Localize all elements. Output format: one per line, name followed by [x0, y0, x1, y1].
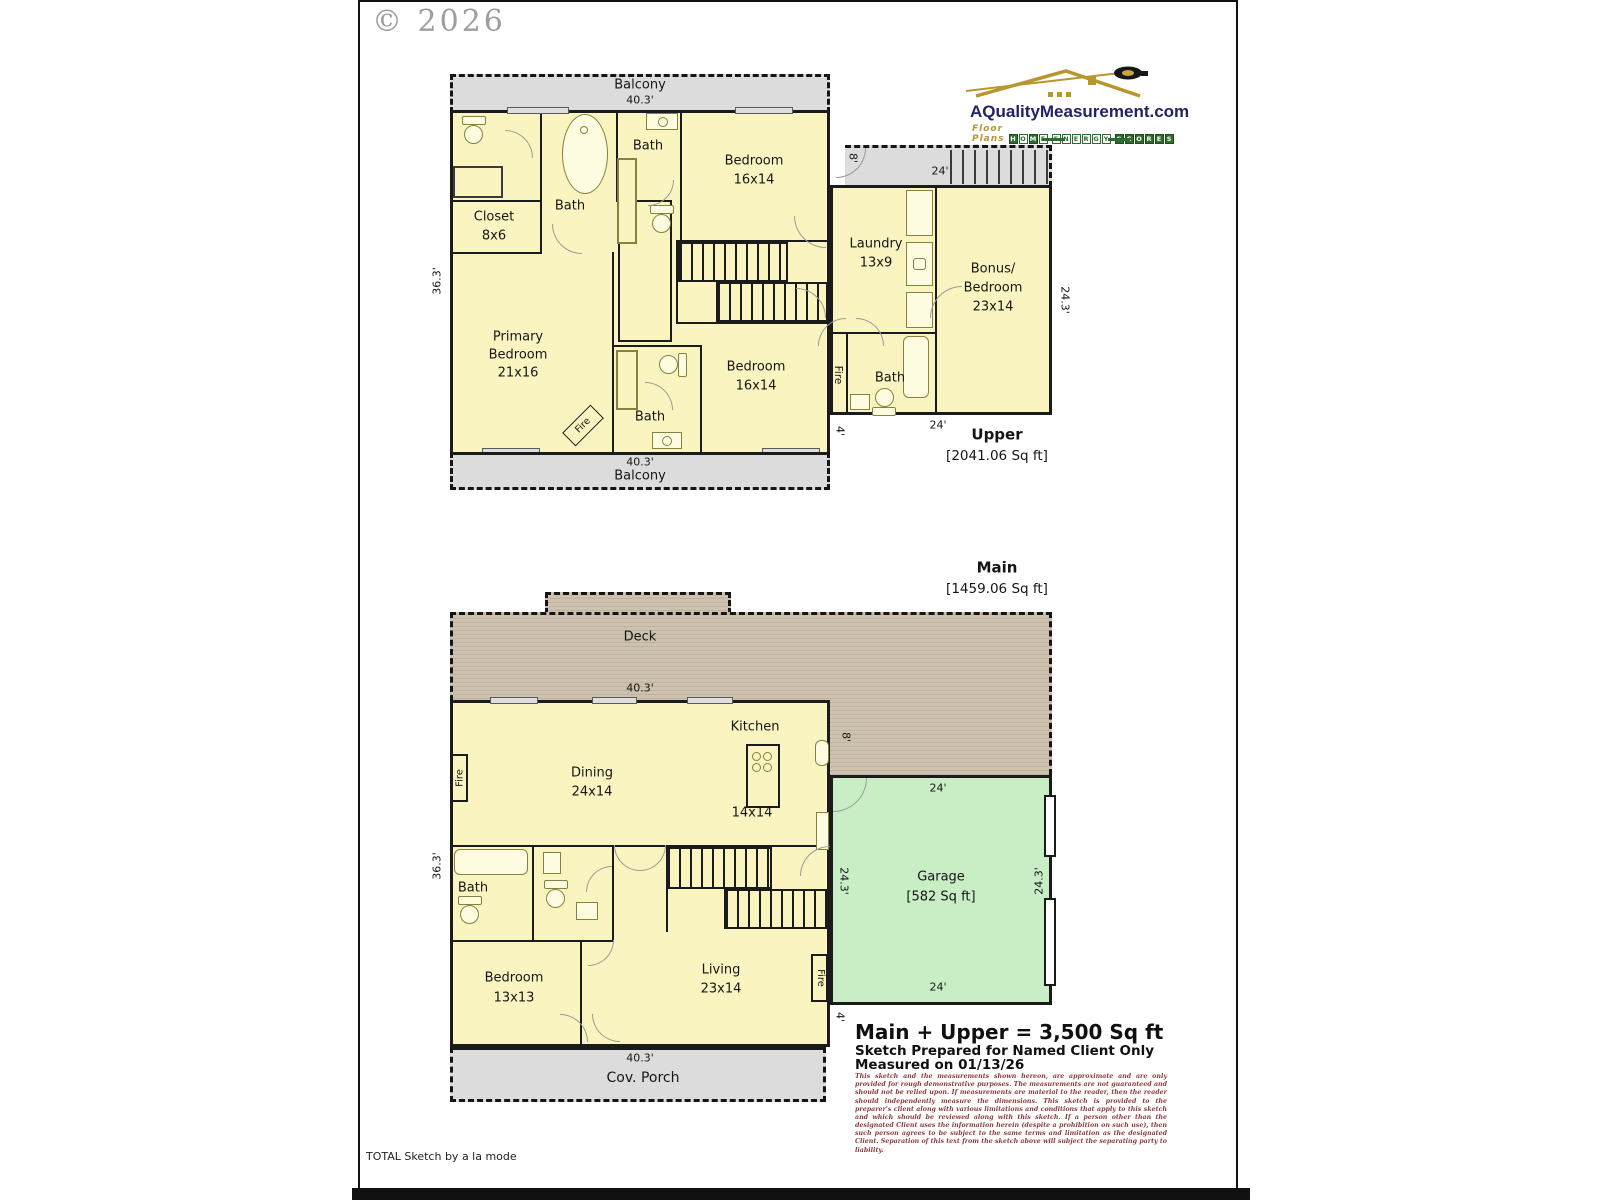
balcony-bottom-label: Balcony [614, 470, 666, 485]
wall [612, 252, 614, 452]
stove-icon [752, 752, 772, 772]
room-label-bedroom-size: 16x14 [734, 174, 775, 189]
fireplace-label: Fire [454, 769, 466, 787]
room-label-closet-size: 8x6 [482, 230, 506, 245]
copyright-watermark: © 2026 [372, 4, 506, 39]
disclaimer-text: This sketch and the measurements shown h… [855, 1073, 1167, 1155]
room-label-bedroom: Bedroom [727, 361, 786, 376]
room-label-laundry-size: 13x9 [860, 257, 893, 272]
main-area: [1459.06 Sq ft] [946, 582, 1048, 598]
wall [450, 200, 542, 202]
window-marker [592, 697, 637, 704]
strip-dim: 24' [931, 166, 948, 179]
room-label-bath: Bath [633, 140, 663, 155]
room-label-bath: Bath [555, 200, 585, 215]
main-title: Main [977, 559, 1018, 576]
kitchen-sink-icon [815, 740, 829, 766]
total-sqft: Main + Upper = 3,500 Sq ft [855, 1020, 1163, 1044]
room-label-bonus-size: 23x14 [973, 301, 1014, 316]
sketch-credit: TOTAL Sketch by a la mode [366, 1150, 517, 1163]
fireplace-label: Fire [832, 366, 844, 385]
room-label-bedroom: Bedroom [485, 972, 544, 987]
upper-title: Upper [971, 426, 1022, 443]
page-border-top [358, 0, 1238, 2]
stairs-main-flight [666, 847, 772, 889]
sink-icon [658, 117, 668, 127]
room-label-dining-size: 24x14 [572, 786, 613, 801]
dim-jog: 4' [833, 426, 846, 436]
window-marker [687, 697, 733, 704]
sink-icon [543, 852, 561, 874]
dim-garage: 24' [929, 982, 946, 995]
toilet-icon [462, 116, 486, 146]
dim-garage: 24' [929, 783, 946, 796]
sink-icon [850, 394, 870, 410]
fireplace-label: Fire [814, 969, 826, 987]
room-label-closet: Closet [474, 211, 515, 226]
room-label-dining: Dining [571, 767, 613, 782]
room-label-kitchen: Kitchen [731, 721, 780, 736]
logo-site-text: AQualityMeasurement.com [970, 102, 1189, 122]
company-logo: AQualityMeasurement.com Floor Plans & HO… [962, 64, 1162, 142]
wall [700, 345, 702, 452]
window-marker [490, 697, 538, 704]
stairs-main-flight [724, 889, 828, 929]
laundry-cabinet-icon [906, 190, 933, 236]
room-label-garage: Garage [917, 871, 965, 886]
porch-dim: 40.3' [626, 1053, 654, 1066]
stairs-upper-flight [678, 242, 788, 282]
shower-icon [453, 166, 503, 198]
wall [540, 110, 542, 252]
window-marker [507, 107, 569, 114]
badge-underline [1042, 138, 1064, 141]
tub-icon [454, 849, 528, 875]
room-label-laundry: Laundry [850, 238, 903, 253]
dim-height: 36.3' [432, 267, 445, 295]
room-label-primary: Bedroom [489, 349, 548, 364]
toilet-icon [544, 880, 568, 910]
dim-notch: 8' [839, 732, 852, 742]
wall [680, 110, 682, 242]
deck-label: Deck [624, 631, 657, 646]
measured-on: Measured on 01/13/26 [855, 1057, 1024, 1073]
shower-icon [617, 158, 637, 244]
room-label-garage-area: [582 Sq ft] [906, 891, 975, 906]
wall [532, 845, 534, 940]
room-label-bedroom: Bedroom [725, 155, 784, 170]
toilet-icon [650, 205, 674, 235]
roof-tape-measure-icon [962, 64, 1162, 104]
page-border-left [358, 0, 360, 1192]
deck-dim: 40.3' [626, 683, 654, 696]
laundry-cabinet-icon [906, 292, 933, 328]
toilet-icon [458, 896, 482, 926]
page-border-right [1236, 0, 1238, 1192]
toilet-icon [872, 386, 896, 416]
dim-garage: 24.3' [1034, 867, 1047, 895]
page-bottom-bar [352, 1188, 1250, 1200]
wall [846, 332, 848, 415]
dim-height: 24.3' [1058, 286, 1071, 314]
room-label-bath: Bath [875, 372, 905, 387]
balcony-top-dim: 40.3' [626, 95, 654, 108]
wall [676, 322, 830, 324]
tub-icon [903, 336, 929, 398]
sink-icon [662, 436, 672, 446]
garage-door-marker [1044, 795, 1056, 857]
dim-jog: 4' [833, 1012, 846, 1022]
upper-area: [2041.06 Sq ft] [946, 449, 1048, 465]
room-label-bonus: Bonus/ [971, 263, 1016, 278]
garage-door-marker [1044, 898, 1056, 986]
badge-underline [1108, 138, 1130, 141]
room-label-bedroom-size: 13x13 [494, 992, 535, 1007]
porch-label: Cov. Porch [607, 1070, 680, 1086]
floorplan-sheet: © 2026 AQualityMeasurement.com Floor Pla… [0, 0, 1600, 1200]
shower-icon [616, 350, 638, 410]
sink-icon [913, 258, 926, 270]
dim-garage: 24.3' [837, 867, 850, 895]
open-stairs-hatch [950, 150, 1050, 184]
deck-bumpout [545, 592, 731, 614]
room-label-bonus: Bedroom [964, 282, 1023, 297]
room-label-living: Living [702, 964, 741, 979]
wall [450, 252, 542, 254]
wall [612, 345, 702, 347]
toilet-icon [657, 353, 687, 377]
window-marker [735, 107, 793, 114]
room-label-primary: Primary [493, 331, 543, 346]
room-label-bedroom-size: 16x14 [736, 380, 777, 395]
dishwasher-icon [816, 812, 829, 850]
room-label-bath: Bath [635, 411, 665, 426]
room-label-kitchen-size: 14x14 [732, 807, 773, 822]
dim-width: 24' [929, 420, 946, 433]
balcony-bottom-dim: 40.3' [626, 457, 654, 470]
room-label-primary-size: 21x16 [498, 367, 539, 382]
room-label-bath: Bath [458, 882, 488, 897]
room-label-living-size: 23x14 [701, 983, 742, 998]
faucet-icon [580, 126, 588, 134]
balcony-top-label: Balcony [614, 79, 666, 94]
dim-height: 36.3' [432, 852, 445, 880]
wall [612, 845, 614, 940]
sink-icon [576, 902, 598, 920]
